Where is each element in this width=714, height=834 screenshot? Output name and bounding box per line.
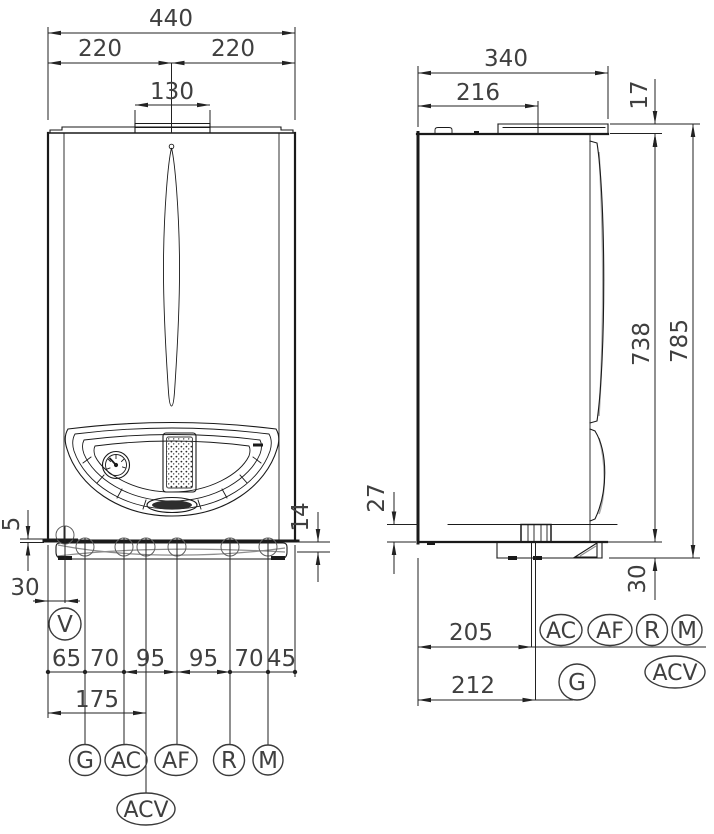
label-m-front: M (253, 745, 283, 775)
dim-text-27: 27 (364, 483, 390, 512)
dim-text-95a: 95 (136, 646, 165, 672)
side-foot-3 (427, 542, 435, 545)
label-acv-side-text: ACV (652, 661, 697, 686)
top-fitting-bump (435, 128, 452, 134)
label-window-sticker (167, 437, 193, 488)
label-g-side-text: G (568, 670, 586, 696)
side-view (417, 124, 617, 560)
label-m-front-text: M (258, 748, 278, 774)
flue-collar (135, 124, 210, 134)
side-foot-2 (533, 556, 542, 560)
label-m-side-text: M (677, 618, 697, 644)
front-crease (163, 144, 179, 406)
dim-text-175: 175 (75, 687, 119, 713)
dim-text-220-left: 220 (78, 36, 122, 62)
dim-gas-depth: 212 (418, 673, 573, 700)
dim-flue-width: 130 (135, 79, 210, 123)
front-connection-labels: V G AC AF R M (49, 608, 283, 825)
dim-connection-spacing: 65 70 95 95 70 45 (46, 646, 297, 674)
label-g-front-text: G (76, 748, 94, 774)
side-connection-tray (427, 542, 602, 560)
side-foot-1 (508, 556, 517, 560)
front-connection-tray (56, 526, 287, 560)
dim-text-45: 45 (267, 646, 296, 672)
gas-connector (448, 525, 617, 543)
label-r-front-text: R (221, 748, 237, 774)
side-connection-labels: AC AF R M ACV G (540, 615, 705, 701)
dim-text-30-side: 30 (625, 564, 651, 593)
label-m-side: M (672, 615, 702, 645)
tray-brace (575, 543, 597, 557)
label-acv-side: ACV (645, 656, 705, 688)
label-r-front: R (214, 745, 245, 776)
pressure-gauge (103, 452, 130, 479)
dim-text-30-front: 30 (10, 575, 39, 601)
data-label-window (163, 433, 196, 492)
flue-collar-outline (135, 124, 210, 134)
label-g-side: G (559, 664, 595, 700)
label-ac-front: AC (105, 745, 147, 776)
dim-total-depth: 340 (418, 46, 608, 127)
dim-text-70b: 70 (234, 646, 263, 672)
label-r-side: R (637, 615, 668, 646)
dim-gas-offset: 27 (364, 483, 418, 574)
brand-badge (147, 498, 197, 513)
dim-text-95b: 95 (189, 646, 218, 672)
boiler-dimension-drawing: 440 220 220 130 5 3 (0, 0, 714, 834)
dim-acv-offset: 175 (48, 687, 146, 713)
dim-text-14: 14 (288, 502, 314, 531)
dim-text-216: 216 (456, 80, 500, 106)
technical-drawing-canvas: 440 220 220 130 5 3 (0, 0, 714, 834)
dim-text-5: 5 (0, 517, 25, 532)
side-dimensions: 340 216 17 738 785 (364, 46, 706, 706)
top-small-tab (474, 131, 479, 134)
dim-text-17: 17 (627, 80, 653, 109)
badge-fill (152, 500, 192, 509)
side-door-profile (590, 141, 605, 521)
label-acv-front-text: ACV (123, 798, 168, 823)
dim-tray-height-side: 30 (625, 558, 655, 600)
dim-valve-offset: 30 (10, 575, 80, 601)
label-af-front-text: AF (162, 749, 190, 774)
control-panel (65, 423, 279, 517)
dim-text-785: 785 (667, 319, 693, 363)
label-v: V (49, 608, 81, 640)
label-af-side: AF (588, 615, 632, 646)
dim-text-220-right: 220 (211, 36, 255, 62)
dim-text-440: 440 (149, 6, 193, 32)
label-acv-front: ACV (117, 793, 175, 825)
dim-text-130: 130 (150, 79, 194, 105)
label-af-front: AF (155, 745, 197, 776)
dim-text-340: 340 (484, 46, 528, 72)
label-r-side-text: R (644, 618, 660, 644)
dim-text-212: 212 (451, 673, 495, 699)
dim-text-205: 205 (449, 620, 493, 646)
crease-lens (163, 148, 179, 406)
front-view (44, 124, 298, 561)
gauge-hub (114, 463, 118, 467)
dim-text-70a: 70 (90, 646, 119, 672)
label-ac-side: AC (540, 615, 582, 646)
label-af-side-text: AF (596, 619, 624, 644)
dim-flue-center-depth: 216 (418, 80, 538, 133)
side-casing-outline (417, 133, 608, 544)
label-v-text: V (57, 612, 73, 638)
label-ac-front-text: AC (111, 749, 141, 774)
dim-text-738: 738 (629, 322, 655, 366)
tray-foot-right (271, 556, 285, 560)
dim-text-65: 65 (52, 646, 81, 672)
label-g-front: G (70, 745, 101, 776)
side-top-plate (498, 124, 608, 133)
label-ac-side-text: AC (546, 619, 576, 644)
